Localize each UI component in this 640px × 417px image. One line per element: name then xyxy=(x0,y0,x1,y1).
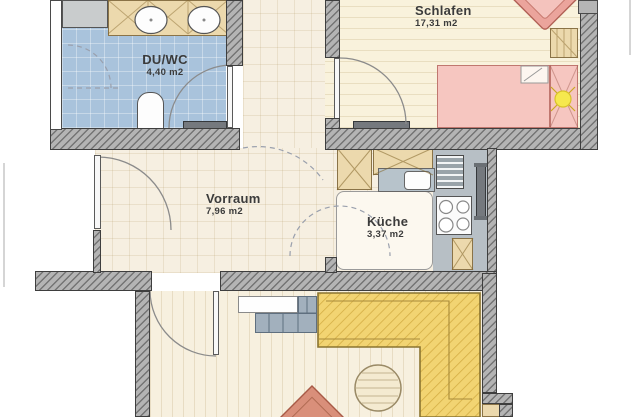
room-area: 3,37 m2 xyxy=(367,230,408,241)
shower-door-arc xyxy=(68,45,118,88)
balcony-door-detail xyxy=(578,0,598,14)
bathroom-label: DU/WC 4,40 m2 xyxy=(129,53,201,79)
wall xyxy=(487,148,497,273)
wall xyxy=(35,271,152,291)
sideboard-grid xyxy=(269,296,317,333)
bedroom-door-leaf xyxy=(334,58,340,122)
bedroom-door-arc xyxy=(340,58,406,124)
corridor-door-arc xyxy=(243,147,323,180)
armchair-pink xyxy=(508,0,582,31)
wall xyxy=(135,291,150,417)
wall xyxy=(220,271,497,291)
room-name: Küche xyxy=(367,215,408,230)
livingroom-door-arc xyxy=(150,291,216,356)
wall xyxy=(482,393,513,404)
wardrobe-lines xyxy=(550,28,578,58)
sink xyxy=(135,7,167,34)
radiator-knob xyxy=(474,216,488,220)
wall-pillar xyxy=(325,257,337,273)
stove-burners xyxy=(439,201,469,233)
livingroom-door-leaf xyxy=(213,291,219,355)
hallway-label: Vorraum 7,96 m2 xyxy=(206,192,261,218)
wall xyxy=(482,273,497,393)
wall xyxy=(499,404,513,417)
bathroom-window xyxy=(50,0,62,130)
radiator-knob xyxy=(474,163,488,167)
room-name: DU/WC xyxy=(129,53,201,68)
room-area: 17,31 m2 xyxy=(415,19,472,30)
pillow xyxy=(521,66,548,83)
entrance-door-leaf xyxy=(94,155,101,229)
entrance-door-post xyxy=(93,230,101,273)
room-name: Vorraum xyxy=(206,192,261,207)
bathroom-door-leaf xyxy=(227,66,233,128)
room-name: Schlafen xyxy=(415,4,472,19)
armchair-red xyxy=(271,386,353,417)
sink xyxy=(188,7,220,34)
floor-plan: DU/WC 4,40 m2 Schlafen 17,31 m2 Vorraum … xyxy=(0,0,640,417)
room-area: 7,96 m2 xyxy=(206,207,261,218)
wall xyxy=(580,13,598,150)
wall xyxy=(50,128,240,150)
wall xyxy=(226,0,243,66)
coffee-table xyxy=(355,365,401,411)
wall xyxy=(325,0,340,58)
room-area: 4,40 m2 xyxy=(129,68,201,79)
bedroom-label: Schlafen 17,31 m2 xyxy=(415,4,472,30)
lamp-icon xyxy=(551,87,575,111)
entrance-door-arc xyxy=(98,157,171,230)
wall xyxy=(325,128,598,150)
kitchen-label: Küche 3,37 m2 xyxy=(367,215,408,241)
